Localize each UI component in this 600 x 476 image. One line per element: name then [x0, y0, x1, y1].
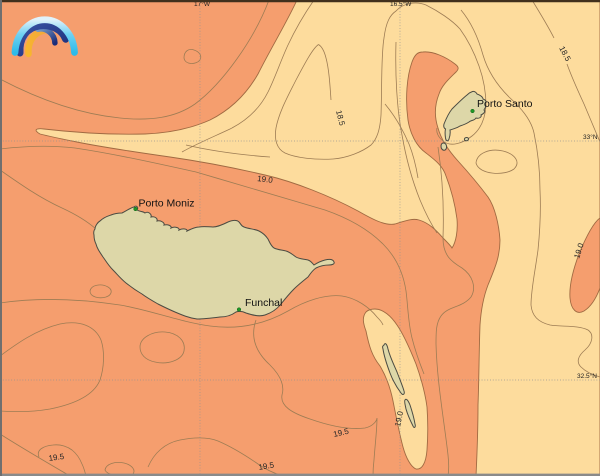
svg-text:Porto Santo: Porto Santo — [477, 98, 533, 110]
svg-text:33°N: 33°N — [583, 133, 598, 141]
svg-text:Funchal: Funchal — [245, 297, 282, 309]
svg-text:Porto Moniz: Porto Moniz — [139, 198, 195, 210]
svg-text:32.5°N: 32.5°N — [577, 372, 597, 380]
